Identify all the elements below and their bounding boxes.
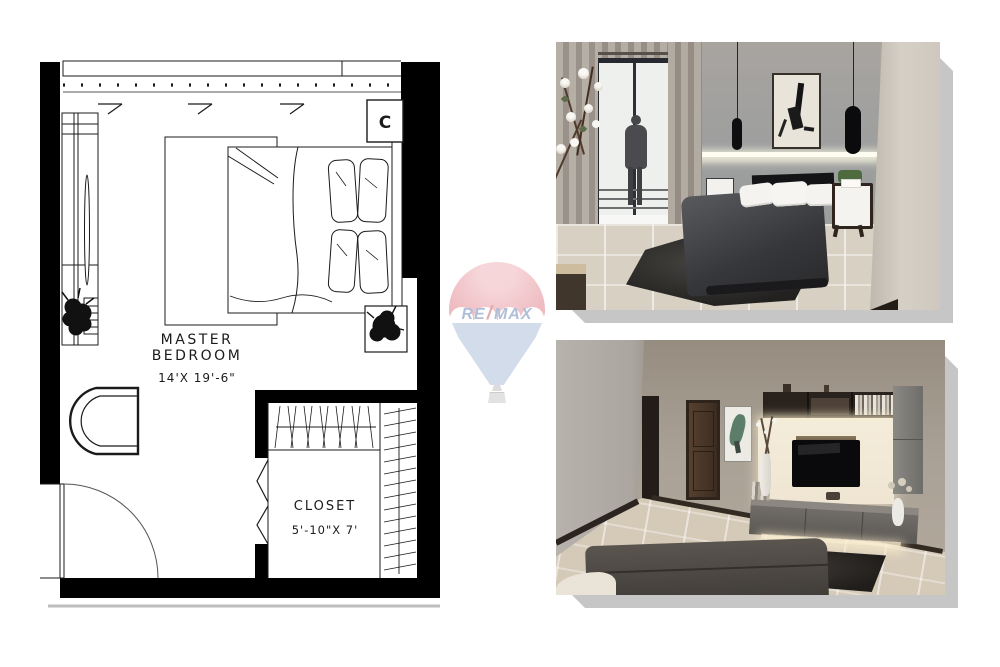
blossom [594,82,603,91]
wood-door [689,403,717,497]
pendant-light [732,118,742,150]
drawer-line [861,512,864,541]
bed-foot [585,538,829,595]
flower-branches [556,66,612,231]
pendant-cord [737,42,738,120]
blossom [584,104,593,113]
room-name-line1: MASTER [161,332,234,348]
remax-balloon-watermark: RE/MAX [447,262,547,410]
plan-closet [257,403,416,578]
flyer-page: { "floor_plan": { "room_name_line1": "MA… [0,0,1000,667]
closet-name-label: CLOSET [294,499,357,514]
shelf-boxes [811,398,849,415]
drawer-line [804,508,807,537]
door-panel [693,451,714,491]
blossom [570,138,579,147]
upper-shelf [763,392,897,418]
blossom [592,120,600,128]
silhouette-head [631,115,641,125]
shelf-figurine [824,385,829,392]
artwork-mark [778,119,787,137]
shelf-figurine [783,384,791,392]
dandelion-vase [892,498,904,526]
dresser-corner-body [556,274,586,310]
abstract-artwork [772,73,821,149]
dandelion-sprig [888,482,895,489]
nightstand-planter [841,179,861,188]
plan-bifold-door [257,460,268,544]
plan-bed [228,140,402,322]
mattress-seam [586,564,828,574]
shelf-divider [851,392,853,418]
open-doorway [642,396,659,502]
nightstand-right [832,183,873,229]
shelf-divider [807,392,809,418]
tall-cabinet [893,386,923,494]
blossom [560,78,570,88]
balloon-envelope-bottom [449,323,545,385]
remax-logo-max: MAX [494,306,533,323]
plan-ac-marker: C [367,100,403,142]
photo-bedroom-render [556,42,940,310]
artwork-mark [788,106,804,130]
blossom [556,144,566,154]
room-name-line2: BEDROOM [152,348,243,364]
remax-logo-text: RE/MAX [447,304,547,324]
silhouette-leg [628,167,633,205]
tv-reflection [798,443,840,455]
blossom [756,422,761,427]
person-silhouette [623,115,649,219]
photo-tv-wall-render [556,340,945,595]
wall-artwork [724,406,752,462]
closet-size-label: 5'-10"X 7' [292,523,359,537]
door-panel [693,411,714,447]
blossom [578,68,589,79]
remax-logo-re: RE [461,306,485,323]
blossom [772,418,777,423]
photo-card-bedroom [556,42,940,310]
silhouette-leg [637,167,642,205]
vase-branches [752,416,782,456]
photo-card-tv-wall [556,340,945,595]
remax-logo-slash: / [486,303,494,324]
floor-plan: C MASTER BEDROOM 14'X 19'-6" CLOSET 5'-1… [40,60,440,622]
ac-marker-label: C [379,113,391,133]
silhouette-body [625,125,647,169]
plan-ceiling-arrows [98,104,304,114]
blossom [566,112,576,122]
blossom [764,430,768,434]
pendant-light [845,106,861,154]
artwork-dark-stroke [734,441,741,454]
foreground-pillar [870,42,940,310]
balloon-neck [492,385,502,391]
dandelion-sprig [898,478,906,486]
balloon-basket [488,392,506,403]
console-bowl [826,492,840,500]
cabinet-door-line [893,439,923,440]
dresser-corner [556,264,586,274]
pillow [771,181,809,207]
artwork-mark [804,126,814,131]
pendant-cord [853,42,854,108]
tall-vase [760,452,771,496]
plan-planter [365,306,407,352]
tv-screen [792,440,860,487]
pillow [739,182,776,209]
shelf-books [855,395,895,415]
dandelion-sprig [906,486,912,492]
plan-entry-door [40,484,158,578]
plan-armchair [70,388,138,454]
plan-window [63,61,401,92]
room-size-label: 14'X 19'-6" [158,371,236,385]
